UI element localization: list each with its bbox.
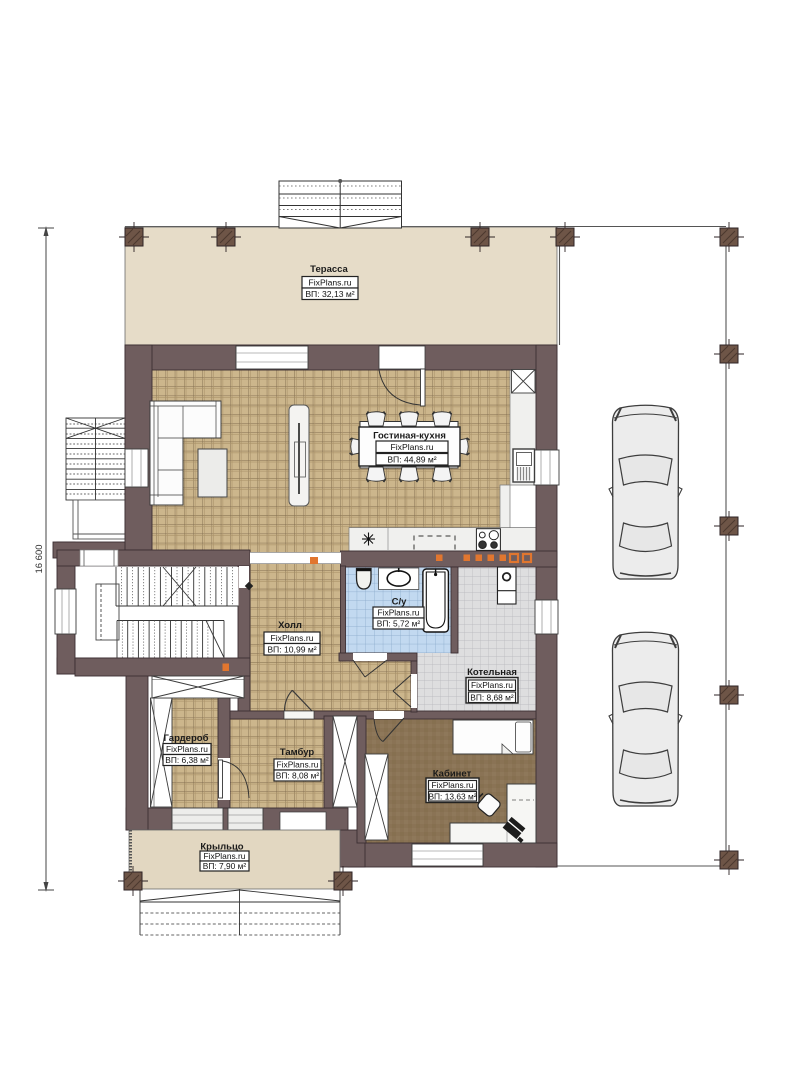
svg-text:Холл: Холл <box>278 620 302 631</box>
svg-text:ВП: 13,63 м²: ВП: 13,63 м² <box>428 791 476 801</box>
svg-text:ВП: 44,89 м²: ВП: 44,89 м² <box>387 455 436 465</box>
svg-text:FixPlans.ru: FixPlans.ru <box>391 442 434 452</box>
svg-text:Гардероб: Гардероб <box>164 733 209 744</box>
svg-text:FixPlans.ru: FixPlans.ru <box>277 759 319 769</box>
svg-text:FixPlans.ru: FixPlans.ru <box>378 607 420 617</box>
svg-text:С/у: С/у <box>392 597 408 608</box>
svg-text:Терасса: Терасса <box>310 264 348 275</box>
svg-text:Тамбур: Тамбур <box>280 747 315 758</box>
svg-text:ВП: 8,08 м²: ВП: 8,08 м² <box>276 771 320 781</box>
svg-text:FixPlans.ru: FixPlans.ru <box>204 851 246 861</box>
svg-text:FixPlans.ru: FixPlans.ru <box>309 277 352 287</box>
svg-text:ВП: 32,13 м²: ВП: 32,13 м² <box>305 289 354 299</box>
svg-text:FixPlans.ru: FixPlans.ru <box>166 744 208 754</box>
svg-text:ВП: 5,72 м²: ВП: 5,72 м² <box>377 619 421 629</box>
svg-text:ВП: 6,38 м²: ВП: 6,38 м² <box>165 755 209 765</box>
svg-text:Котельная: Котельная <box>467 667 517 678</box>
svg-text:ВП: 10,99 м²: ВП: 10,99 м² <box>267 645 316 655</box>
svg-text:FixPlans.ru: FixPlans.ru <box>271 633 314 643</box>
svg-text:16 600: 16 600 <box>34 544 45 573</box>
svg-text:Гостиная-кухня: Гостиная-кухня <box>373 431 446 442</box>
svg-text:ВП: 8,68 м²: ВП: 8,68 м² <box>470 692 514 702</box>
svg-text:ВП: 7,90 м²: ВП: 7,90 м² <box>203 861 247 871</box>
svg-text:FixPlans.ru: FixPlans.ru <box>471 680 513 690</box>
svg-text:FixPlans.ru: FixPlans.ru <box>432 780 474 790</box>
